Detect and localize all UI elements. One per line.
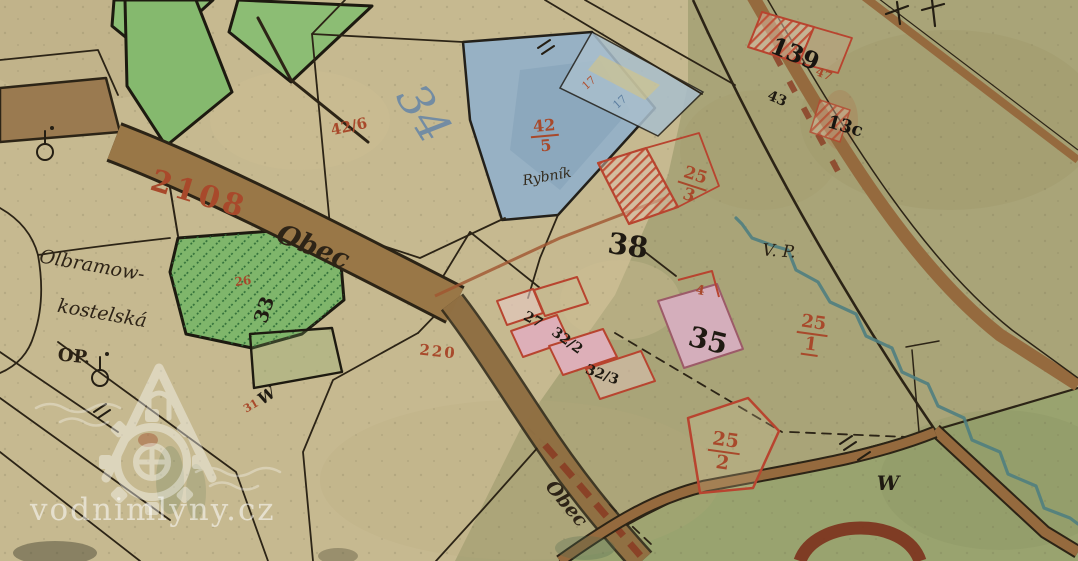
fraction-denominator: 1: [801, 335, 820, 357]
parcel-label-42-5: 42 5: [529, 117, 560, 155]
parcel-label-25-1: 25 1: [794, 312, 831, 358]
fraction-denominator: 2: [713, 453, 733, 474]
parcel-label-38: 38: [606, 229, 650, 263]
abbrev-label-vp: V. P.: [762, 242, 797, 261]
parcel-label-35: 35: [686, 323, 731, 360]
parcel-label-220: 220: [419, 343, 458, 362]
watermark-site-text: vodnimlyny.cz: [30, 492, 276, 528]
fraction-denominator: 3: [679, 185, 699, 206]
meadow-label-w-right: W: [877, 473, 899, 493]
parcel-label-26: 26: [234, 274, 252, 288]
fraction-denominator: 5: [538, 137, 554, 154]
map-artwork: [0, 0, 1078, 561]
map-viewport: 2108 Obec 42/6 34 42 5 Rybník 17 17 25 3…: [0, 0, 1078, 561]
parcel-label-25-2: 25 2: [705, 429, 743, 475]
abbrev-label-op: OP.: [57, 346, 91, 367]
road-stub-left: [0, 78, 120, 142]
